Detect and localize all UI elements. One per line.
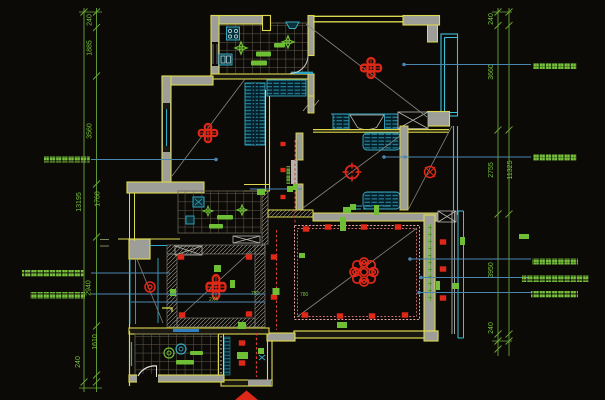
svg-text:240: 240 — [75, 356, 82, 368]
svg-text:240: 240 — [87, 14, 94, 26]
svg-text:2755: 2755 — [488, 162, 495, 178]
svg-text:1760: 1760 — [95, 191, 102, 207]
svg-text:13195: 13195 — [76, 192, 83, 212]
svg-text:240: 240 — [488, 322, 495, 334]
svg-text:3660: 3660 — [488, 64, 495, 80]
svg-text:3950: 3950 — [488, 262, 495, 278]
svg-text:2940: 2940 — [86, 280, 93, 296]
svg-text:11325: 11325 — [507, 160, 514, 179]
svg-text:1885: 1885 — [87, 40, 94, 56]
svg-text:3560: 3560 — [87, 123, 94, 139]
svg-text:1610: 1610 — [92, 334, 99, 350]
svg-text:780: 780 — [300, 292, 309, 298]
svg-text:240: 240 — [488, 13, 495, 25]
